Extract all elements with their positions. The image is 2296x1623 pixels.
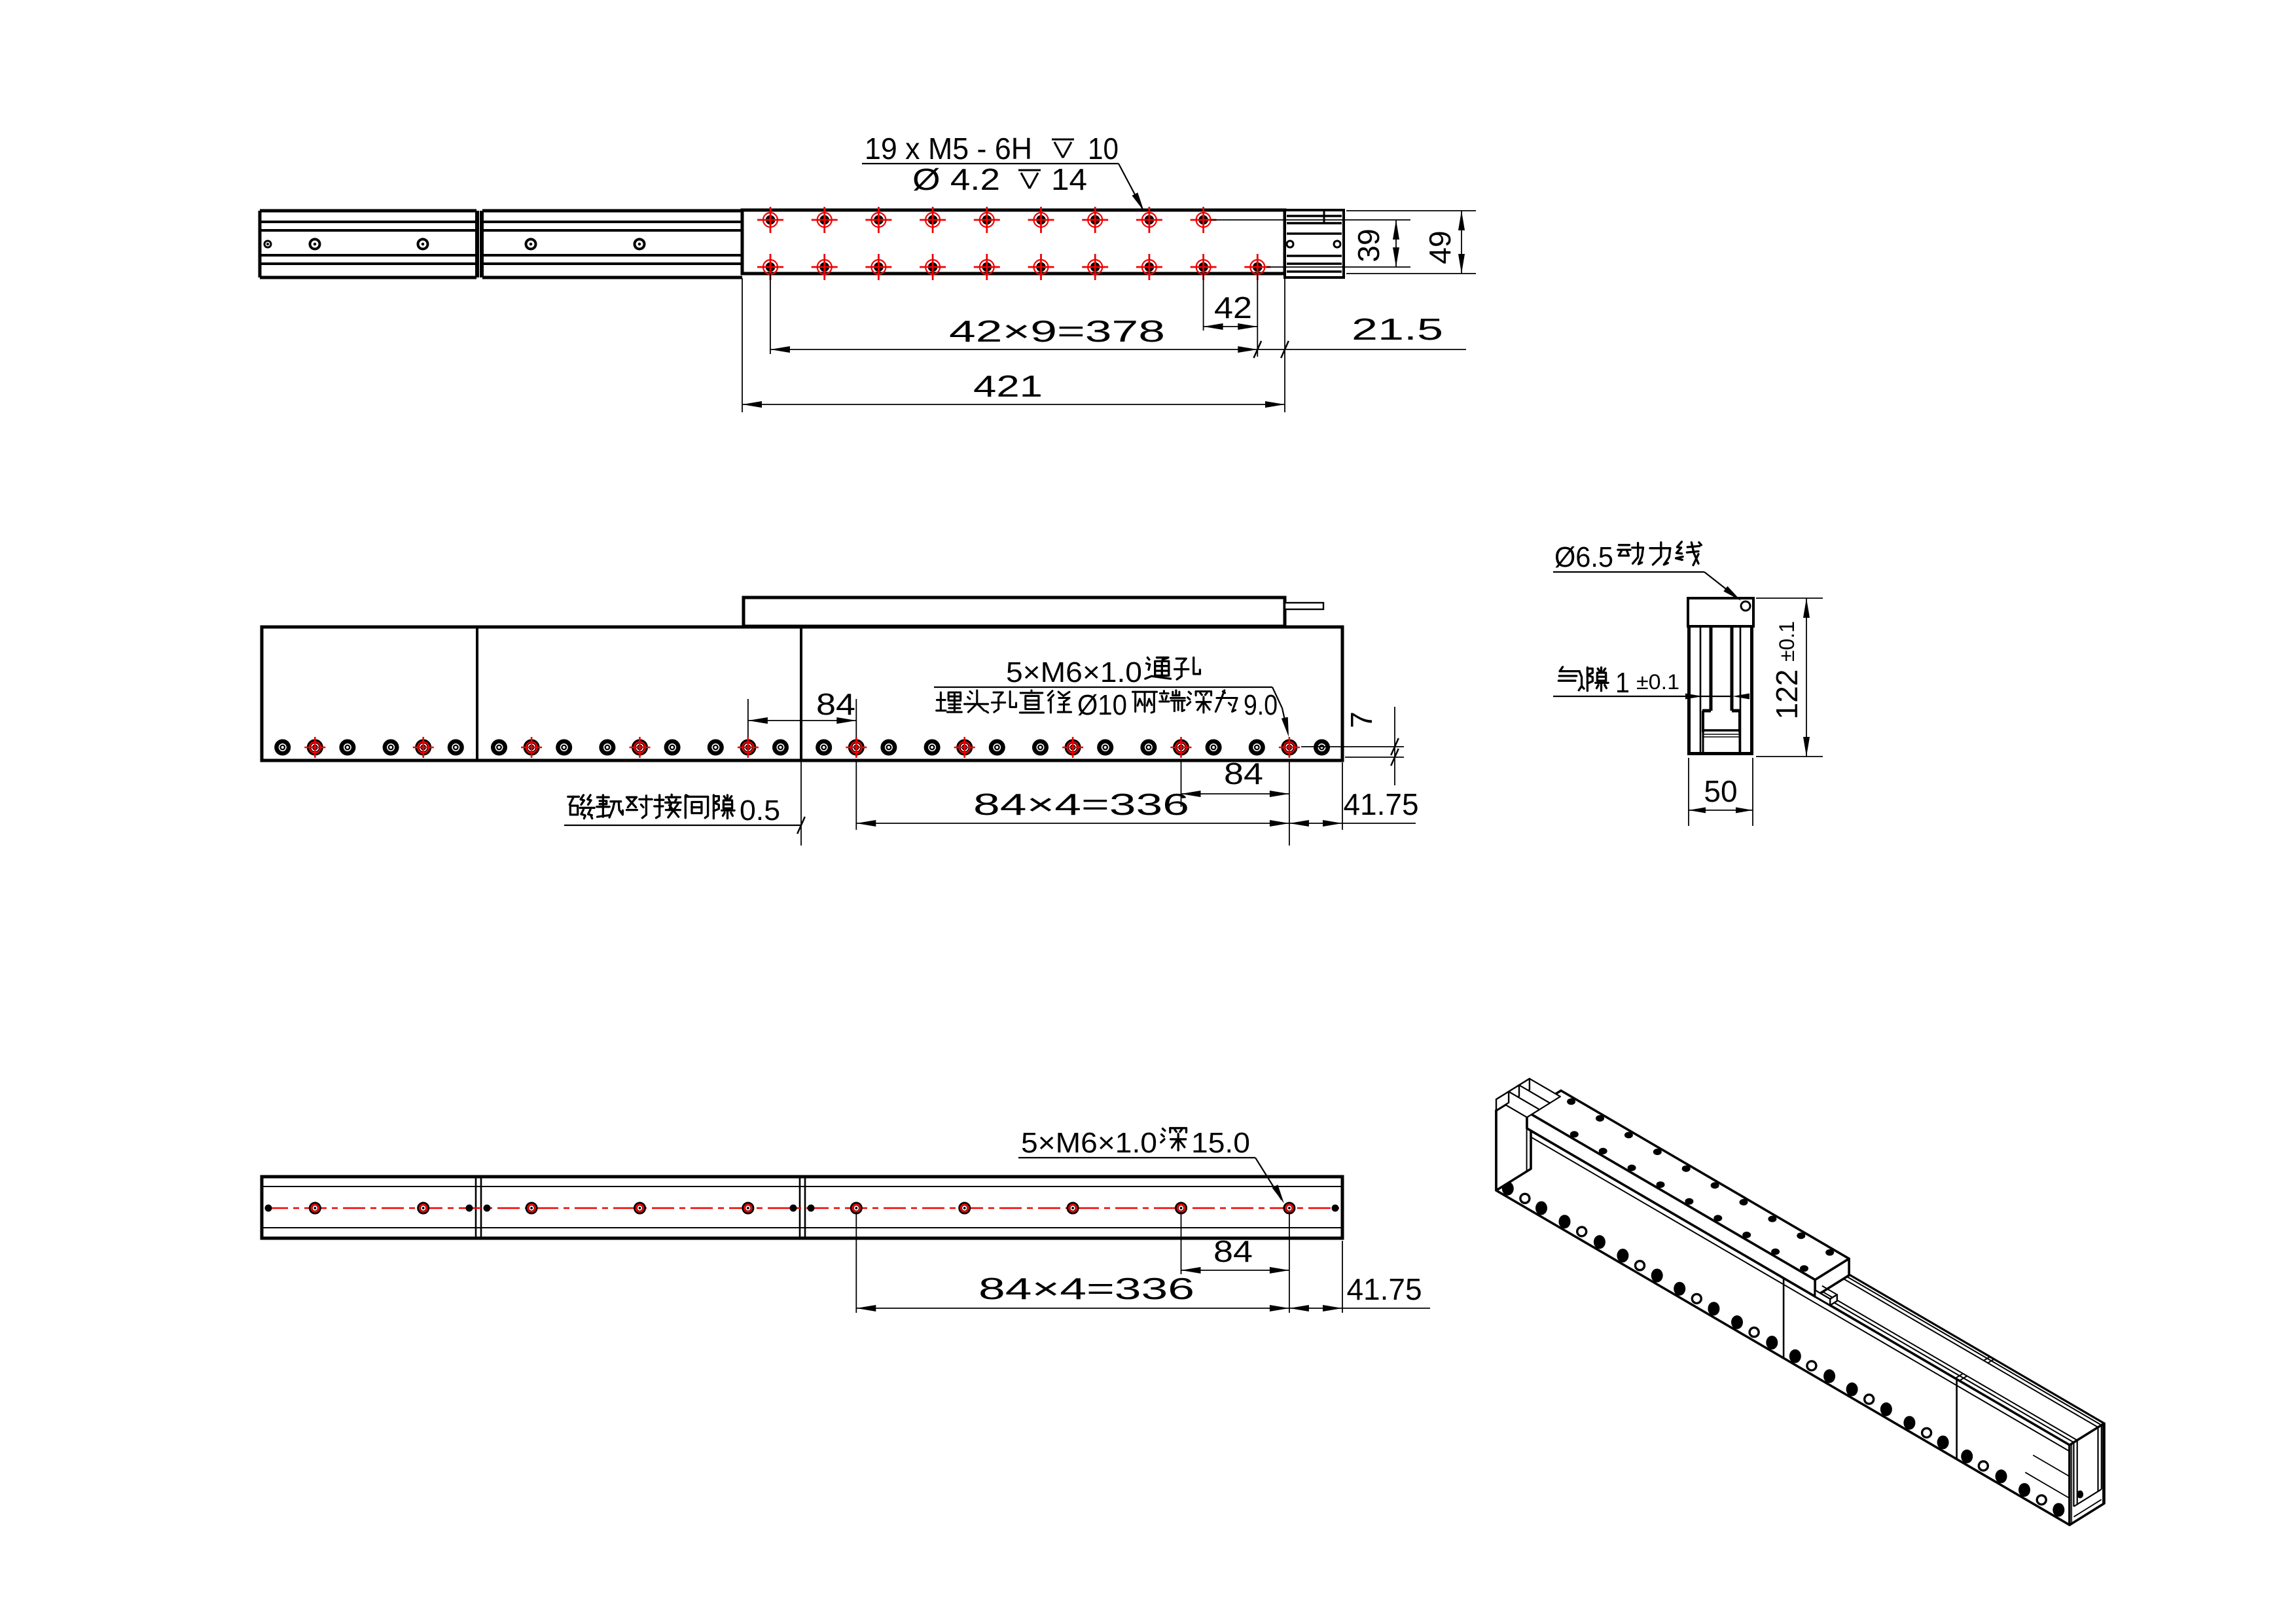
svg-text:14: 14 <box>1051 162 1087 196</box>
svg-text:10: 10 <box>1088 132 1119 166</box>
svg-text:42×9=378: 42×9=378 <box>949 314 1165 348</box>
svg-text:Ø 4.2: Ø 4.2 <box>912 162 1000 196</box>
svg-text:41.75: 41.75 <box>1343 787 1418 821</box>
svg-text:421: 421 <box>973 369 1043 403</box>
svg-text:9.0: 9.0 <box>1244 689 1278 721</box>
svg-text:21.5: 21.5 <box>1352 312 1443 346</box>
svg-text:5×M6×1.0: 5×M6×1.0 <box>1006 656 1142 688</box>
svg-text:1: 1 <box>1615 667 1630 699</box>
svg-text:84: 84 <box>1213 1234 1253 1268</box>
svg-text:84: 84 <box>1224 757 1263 791</box>
svg-text:Ø6.5: Ø6.5 <box>1554 541 1613 573</box>
svg-text:41.75: 41.75 <box>1346 1272 1422 1306</box>
svg-text:84: 84 <box>816 687 855 721</box>
svg-text:±0.1: ±0.1 <box>1775 621 1799 662</box>
svg-text:Ø10: Ø10 <box>1077 689 1127 721</box>
svg-text:50: 50 <box>1704 774 1737 808</box>
svg-text:42: 42 <box>1214 291 1252 325</box>
svg-text:5×M6×1.0: 5×M6×1.0 <box>1021 1127 1157 1159</box>
svg-text:19 x M5 - 6H: 19 x M5 - 6H <box>865 132 1032 166</box>
svg-text:0.5: 0.5 <box>740 794 780 827</box>
svg-text:84×4=336: 84×4=336 <box>973 787 1189 821</box>
svg-text:±0.1: ±0.1 <box>1636 670 1679 694</box>
svg-text:15.0: 15.0 <box>1191 1127 1250 1159</box>
svg-text:122: 122 <box>1770 669 1804 720</box>
svg-text:7: 7 <box>1344 711 1378 728</box>
svg-text:49: 49 <box>1423 230 1457 264</box>
svg-text:84×4=336: 84×4=336 <box>978 1272 1194 1306</box>
svg-text:39: 39 <box>1352 228 1386 262</box>
